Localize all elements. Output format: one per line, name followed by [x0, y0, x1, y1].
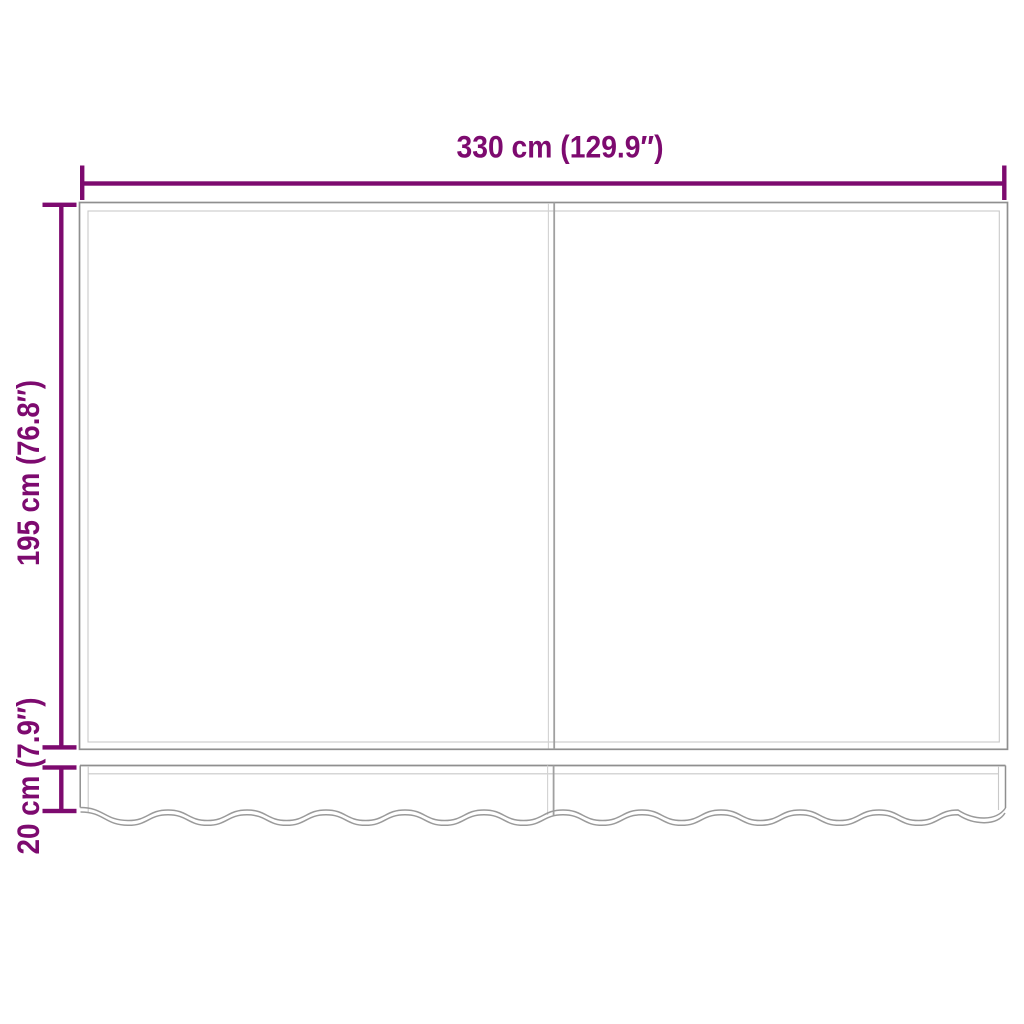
svg-text:20 cm (7.9″): 20 cm (7.9″) — [10, 698, 46, 855]
svg-text:195 cm (76.8″): 195 cm (76.8″) — [10, 380, 46, 566]
svg-text:330 cm (129.9″): 330 cm (129.9″) — [457, 129, 664, 165]
